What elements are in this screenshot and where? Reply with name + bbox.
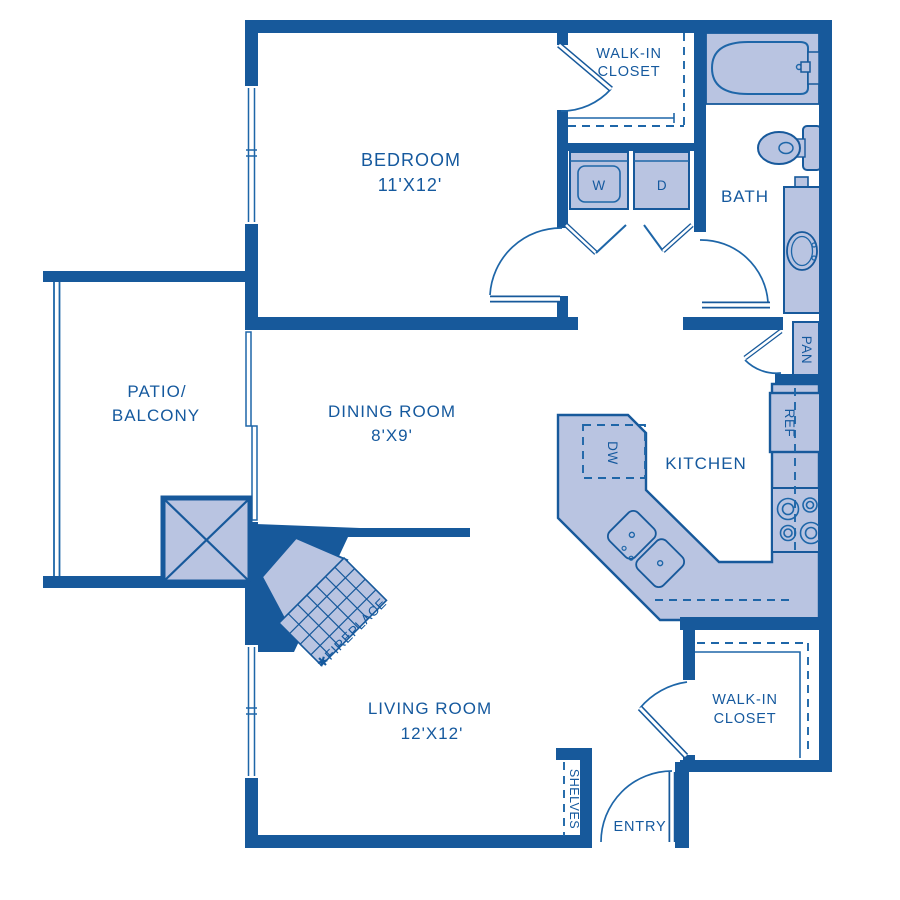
- wall-shelves-top: [556, 748, 592, 760]
- dining-label: DINING ROOM: [328, 402, 456, 421]
- toilet-tank: [803, 126, 821, 170]
- patio-label-2: BALCONY: [112, 406, 200, 425]
- floor-plan: BEDROOM 11'X12' WALK-IN CLOSET BATH W D …: [0, 0, 900, 900]
- wall-divider: [258, 528, 470, 537]
- living-dims: 12'X12': [401, 724, 464, 743]
- washer-label: W: [592, 178, 605, 193]
- wall-top: [245, 20, 832, 33]
- dining-dims: 8'X9': [371, 426, 413, 445]
- closet-top-label-2: CLOSET: [598, 64, 661, 80]
- living-window-opening: [245, 645, 258, 778]
- wall-closet2-bottom: [680, 760, 832, 772]
- wall-laundry-top: [557, 143, 700, 151]
- bath-fixtures: [706, 33, 821, 313]
- patio-label-1: PATIO/: [127, 382, 186, 401]
- tub-spout: [801, 62, 810, 72]
- shelves-label: SHELVES: [567, 769, 581, 829]
- closet-top-rod: [568, 113, 674, 123]
- bedroom-door-arc: [490, 228, 562, 295]
- bedroom-dims: 11'X12': [378, 175, 443, 195]
- closet-bottom-door-arc: [640, 682, 687, 708]
- laundry-bifold-doors: [566, 225, 692, 253]
- labels: BEDROOM 11'X12' WALK-IN CLOSET BATH W D …: [112, 46, 814, 835]
- closet-top-label-1: WALK-IN: [596, 46, 661, 62]
- closet-bottom-label-1: WALK-IN: [712, 692, 777, 708]
- wall-bath-bottom: [683, 317, 783, 330]
- patio-wall-top: [43, 271, 252, 282]
- bath-door-arc: [700, 240, 768, 302]
- wall-bottom: [245, 835, 590, 848]
- refrigerator-label: REF: [782, 409, 797, 438]
- pantry-label: PAN: [799, 336, 814, 365]
- wall-closet-left-top: [557, 20, 568, 45]
- wall-right: [819, 20, 832, 772]
- laundry-fixtures: [570, 152, 689, 209]
- bath-label: BATH: [721, 187, 769, 206]
- wall-entry-jamb: [675, 762, 689, 848]
- fireplace: [256, 524, 386, 665]
- wall-closet-left: [557, 110, 568, 228]
- floor-plan-drawing: BEDROOM 11'X12' WALK-IN CLOSET BATH W D …: [0, 0, 900, 900]
- kitchen-label: KITCHEN: [665, 454, 747, 473]
- wall-closet2-left-top: [683, 617, 695, 680]
- dryer-label: D: [657, 178, 667, 193]
- pantry-door-arc: [745, 360, 781, 373]
- patio-storage-box: [163, 498, 250, 582]
- wall-bath-left: [694, 20, 706, 232]
- dishwasher-label: DW: [605, 441, 620, 465]
- wall-bedroom-bottom: [245, 317, 578, 330]
- wall-pantry-bottom: [775, 374, 832, 385]
- bedroom-window-opening: [245, 86, 258, 224]
- wall-closet2-top: [680, 617, 832, 630]
- windows: [245, 86, 258, 778]
- closet-bottom-label-2: CLOSET: [714, 711, 777, 727]
- closet-top-door-arc: [561, 89, 611, 111]
- entry-label: ENTRY: [614, 819, 667, 835]
- living-label: LIVING ROOM: [368, 699, 492, 718]
- bedroom-label: BEDROOM: [361, 150, 461, 170]
